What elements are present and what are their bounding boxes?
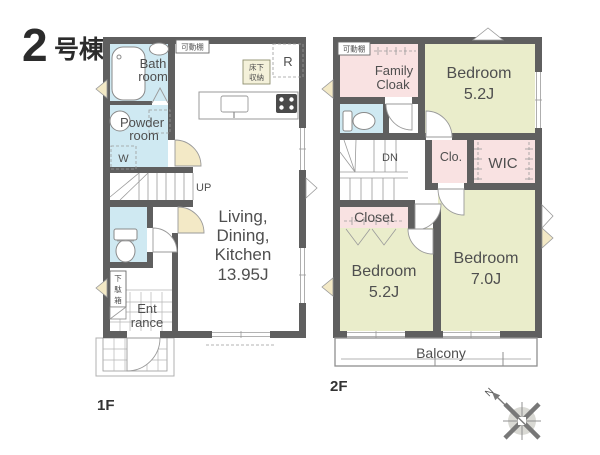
- vent-arrow-bedroom-top: [473, 28, 503, 40]
- vent-arrow-bathroom: [96, 80, 107, 98]
- entrance-label-1: Ent: [137, 301, 157, 316]
- refrigerator-space: R: [273, 44, 303, 77]
- family-cloak-label-2: Cloak: [376, 77, 410, 92]
- bedroom-right-label: Bedroom: [454, 250, 519, 267]
- bathroom-label-2: room: [138, 69, 168, 84]
- compass: N: [483, 386, 541, 440]
- stairs-1f: [110, 173, 193, 200]
- powder-room-door: [175, 140, 201, 166]
- vent-arrow-bedroom-right-2: [542, 228, 553, 248]
- wic-label: WIC: [488, 155, 517, 172]
- stairs-2f: [340, 140, 408, 200]
- building-number: 2: [22, 19, 48, 71]
- vent-arrow-toilet-1f: [96, 279, 107, 297]
- powder-room-label-2: room: [129, 128, 159, 143]
- refrigerator-label: R: [283, 54, 292, 69]
- window-right-upper: [299, 128, 306, 170]
- underfloor-storage-line2: 収納: [249, 72, 264, 82]
- window-right-bedroom-top: [535, 72, 542, 128]
- shoe-cabinet-char3: 箱: [114, 295, 122, 305]
- clo-label: Clo.: [440, 150, 462, 164]
- bedroom-left-size: 5.2J: [369, 284, 399, 301]
- ldk-label-1: Living,: [218, 207, 267, 226]
- building-title: 2 号棟: [22, 19, 105, 71]
- ldk-door: [178, 207, 204, 233]
- vent-arrow-bedroom-left: [322, 278, 333, 296]
- shoe-cabinet: 下 駄 箱: [110, 271, 126, 319]
- movable-shelf-2f-label: 可動棚: [343, 44, 366, 54]
- ldk-label-2: Dining,: [217, 226, 270, 245]
- window-balcony-left: [347, 331, 405, 338]
- floor-1f-label: 1F: [97, 397, 115, 414]
- toilet-2f-icon: [343, 111, 375, 131]
- bedroom-top-label: Bedroom: [447, 65, 512, 82]
- bedroom-right-size: 7.0J: [471, 271, 501, 288]
- vent-arrow-family-cloak: [322, 80, 333, 98]
- stairs-down-label: DN: [382, 152, 398, 164]
- bedroom-left-label: Bedroom: [352, 263, 417, 280]
- toilet-2f-door: [386, 104, 412, 130]
- window-right-lower: [299, 248, 306, 303]
- movable-shelf-1f-label: 可動棚: [181, 42, 204, 52]
- ldk-size-label: 13.95J: [217, 265, 268, 284]
- window-balcony-right: [443, 331, 500, 338]
- building-suffix: 号棟: [54, 36, 105, 64]
- stove-icon: [276, 94, 297, 113]
- vent-arrow-ldk-right: [306, 178, 317, 198]
- floor-plan-drawing: 2 号棟: [0, 0, 600, 455]
- kitchen-sink-icon: [221, 96, 248, 112]
- shoe-cabinet-char1: 下: [114, 274, 122, 283]
- underfloor-storage-line1: 床下: [249, 62, 264, 72]
- ldk-label-3: Kitchen: [215, 245, 272, 264]
- bedroom-top-size: 5.2J: [464, 86, 494, 103]
- entrance-label-2: rance: [131, 315, 164, 330]
- toilet-1f-door: [153, 228, 177, 252]
- stairs-up-label: UP: [196, 182, 211, 194]
- floor-plan-1f: 下 駄 箱 可動棚 床下 収納 R: [96, 37, 317, 414]
- family-cloak-label-1: Family: [375, 63, 414, 78]
- closet-label: Closet: [354, 209, 394, 225]
- kitchen-counter: [199, 92, 298, 119]
- movable-shelf-2f: 可動棚: [338, 42, 370, 55]
- balcony-label: Balcony: [416, 345, 466, 361]
- window-bottom-ldk: [206, 331, 276, 345]
- floor-2f-label: 2F: [330, 378, 348, 395]
- floor-plan-2f: 可動棚 Balcony Family Cloak Bedroom 5.2J DN…: [322, 28, 553, 395]
- vent-arrow-bedroom-right-1: [542, 205, 553, 228]
- shoe-cabinet-char2: 駄: [114, 284, 122, 294]
- underfloor-storage: 床下 収納: [243, 60, 270, 84]
- balcony: Balcony: [335, 338, 537, 366]
- washer-space-label: W: [118, 153, 129, 165]
- movable-shelf-1f: 可動棚: [176, 40, 209, 53]
- toilet-1f-icon: [114, 229, 137, 262]
- bath-basin-icon: [150, 43, 169, 55]
- floor-plan-page: 2 号棟: [0, 0, 600, 455]
